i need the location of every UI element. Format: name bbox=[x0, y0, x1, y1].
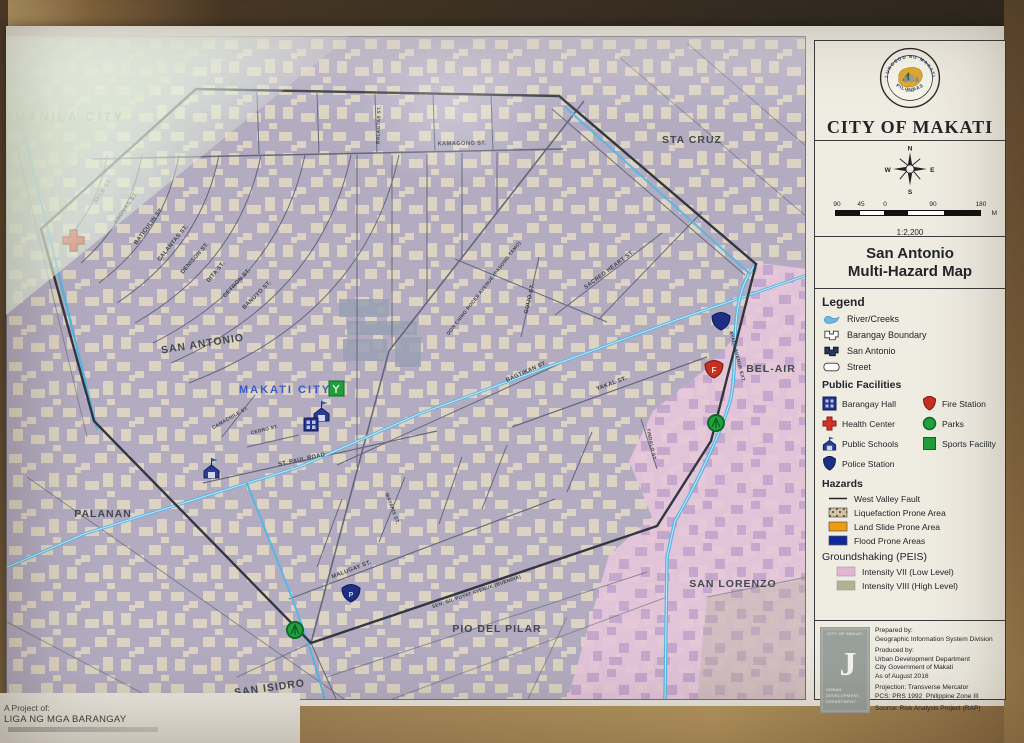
source: Source: Risk Analysis Project (RAP) bbox=[875, 705, 993, 714]
legend-item-boundary: Barangay Boundary bbox=[822, 328, 998, 342]
facility-police-station: Police Station bbox=[822, 456, 920, 471]
udd-logo-letter: J bbox=[840, 646, 857, 683]
compass-e: E bbox=[930, 167, 935, 174]
legend-label: Barangay Boundary bbox=[847, 330, 927, 340]
scale-tick: 90 bbox=[929, 201, 936, 208]
scale-ratio: 1:2,200 bbox=[821, 228, 999, 237]
wood-frame-right bbox=[1004, 0, 1024, 743]
seal-box: 1990 LUNGSOD NG MAKATI PILIPINAS CITY OF… bbox=[815, 41, 1005, 141]
udd-logo-top: CITY OF MAKATI bbox=[827, 631, 863, 636]
map-title-box: San Antonio Multi-Hazard Map bbox=[815, 237, 1005, 289]
health-center-legend-icon bbox=[822, 416, 837, 431]
legend-label: Flood Prone Areas bbox=[854, 536, 925, 546]
produced-by-3: As of August 2016 bbox=[875, 673, 993, 682]
legend-item-river: River/Creeks bbox=[822, 312, 998, 326]
park-icon-south bbox=[287, 622, 303, 638]
legend-label: Parks bbox=[942, 419, 964, 429]
legend-label: Barangay Hall bbox=[842, 399, 896, 409]
scale-bar: 90 45 0 90 180 M bbox=[835, 201, 985, 225]
facilities-title: Public Facilities bbox=[822, 379, 998, 391]
parks-legend-icon bbox=[922, 416, 937, 431]
flood-swatch bbox=[828, 535, 848, 546]
landslide-swatch bbox=[828, 521, 848, 532]
legend-box: Legend River/Creeks Barangay Boundary Sa… bbox=[815, 289, 1005, 621]
district-label-palanan: PALANAN bbox=[74, 508, 132, 520]
footer-project-credit: A Project of: LIGA NG MGA BARANGAY bbox=[0, 693, 300, 743]
liquefaction-swatch bbox=[828, 507, 848, 518]
legend-label: Public Schools bbox=[842, 439, 898, 449]
facility-fire-station: Fire Station bbox=[922, 396, 998, 411]
fire-glyph: F bbox=[712, 366, 717, 375]
compass-w: W bbox=[885, 167, 892, 174]
street-label-kamagong: KAMAGONG ST. bbox=[438, 141, 487, 148]
hazard-map-svg: MANILA CITY STA CRUZ SAN ANTONIO PALANAN… bbox=[7, 37, 806, 700]
facility-sports: Sports Facility bbox=[922, 436, 998, 451]
hazard-fault: West Valley Fault bbox=[828, 493, 998, 504]
legend-item-san-antonio: San Antonio bbox=[822, 344, 998, 358]
compass-rose: N S W E bbox=[884, 143, 936, 195]
hazard-flood: Flood Prone Areas bbox=[828, 535, 998, 546]
scale-unit: M bbox=[992, 210, 997, 217]
scale-segments bbox=[835, 210, 981, 216]
hazard-liquefaction: Liquefaction Prone Area bbox=[828, 507, 998, 518]
shaking-viii: Intensity VIII (High Level) bbox=[836, 580, 998, 591]
legend-label: River/Creeks bbox=[847, 314, 899, 324]
legend-label: Police Station bbox=[842, 459, 895, 469]
projection: Projection: Transverse Mercator bbox=[875, 684, 993, 693]
pcs: PCS: PRS 1992_Philippine Zone III bbox=[875, 693, 993, 702]
district-label-manila-city: MANILA CITY bbox=[15, 110, 125, 124]
west-valley-fault-icon bbox=[828, 493, 848, 504]
map-title-line1: San Antonio bbox=[821, 245, 999, 263]
barangay-hall-icon bbox=[304, 418, 318, 431]
river-icon bbox=[822, 312, 841, 326]
produced-by-1: Urban Development Department bbox=[875, 656, 993, 665]
hazard-landslide: Land Slide Prone Area bbox=[828, 521, 998, 532]
legend-label: Health Center bbox=[842, 419, 895, 429]
makati-city-label: MAKATI CITY bbox=[239, 384, 331, 396]
map-canvas: MANILA CITY STA CRUZ SAN ANTONIO PALANAN… bbox=[6, 36, 806, 700]
district-label-sta-cruz: STA CRUZ bbox=[662, 134, 722, 146]
udd-logo-b3: DEPARTMENT bbox=[826, 699, 856, 704]
produced-by-label: Produced by: bbox=[875, 647, 993, 656]
framed-map-photo: MANILA CITY STA CRUZ SAN ANTONIO PALANAN… bbox=[0, 0, 1024, 743]
scale-tick: 180 bbox=[976, 201, 987, 208]
legend-label: Fire Station bbox=[942, 399, 986, 409]
district-label-san-lorenzo: SAN LORENZO bbox=[689, 578, 776, 590]
prepared-by: Geographic Information System Division bbox=[875, 636, 993, 645]
legend-title: Legend bbox=[822, 295, 998, 309]
info-panel: 1990 LUNGSOD NG MAKATI PILIPINAS CITY OF… bbox=[814, 40, 1006, 700]
legend-label: Liquefaction Prone Area bbox=[854, 508, 946, 518]
facility-barangay-hall: Barangay Hall bbox=[822, 396, 920, 411]
intensity-vii-swatch bbox=[836, 566, 856, 577]
street-icon bbox=[822, 360, 841, 374]
produced-by-2: City Government of Makati bbox=[875, 664, 993, 673]
legend-label: Sports Facility bbox=[942, 439, 996, 449]
facility-public-schools: Public Schools bbox=[822, 436, 920, 451]
compass-star bbox=[893, 152, 926, 185]
wood-frame-top bbox=[0, 0, 1024, 28]
public-schools-legend-icon bbox=[822, 436, 837, 451]
facility-parks: Parks bbox=[922, 416, 998, 431]
facilities-grid: Barangay Hall Fire Station Health Center… bbox=[822, 394, 998, 473]
compass-n: N bbox=[908, 145, 913, 152]
sports-facility-legend-icon bbox=[922, 436, 937, 451]
udd-logo-b2: DEVELOPMENT bbox=[826, 693, 860, 698]
legend-item-street: Street bbox=[822, 360, 998, 374]
fire-station-legend-icon bbox=[922, 396, 937, 411]
barangay-boundary-icon bbox=[822, 328, 841, 342]
prepared-by-label: Prepared by: bbox=[875, 627, 993, 636]
police-station-legend-icon bbox=[822, 456, 837, 471]
scale-tick: 0 bbox=[883, 201, 887, 208]
district-label-pio-del-pilar: PIO DEL PILAR bbox=[452, 623, 541, 635]
legend-label: Street bbox=[847, 362, 871, 372]
legend-label: West Valley Fault bbox=[854, 494, 920, 504]
legend-label: Intensity VIII (High Level) bbox=[862, 581, 958, 591]
legend-label: San Antonio bbox=[847, 346, 896, 356]
intensity-viii-swatch bbox=[836, 580, 856, 591]
udd-logo: CITY OF MAKATI J URBAN DEVELOPMENT DEPAR… bbox=[820, 627, 870, 713]
poster-sheet: MANILA CITY STA CRUZ SAN ANTONIO PALANAN… bbox=[6, 26, 1008, 717]
project-label: A Project of: bbox=[4, 703, 300, 713]
san-antonio-area-icon bbox=[822, 344, 841, 358]
legend-label: Land Slide Prone Area bbox=[854, 522, 940, 532]
compass-s: S bbox=[908, 189, 913, 195]
district-label-bel-air: BEL-AIR bbox=[746, 363, 796, 375]
credits-text: Prepared by: Geographic Information Syst… bbox=[875, 627, 993, 715]
park-icon-east bbox=[708, 415, 724, 431]
groundshaking-title: Groundshaking (PEIS) bbox=[822, 551, 998, 563]
police-glyph: P bbox=[349, 592, 354, 599]
scale-labels: 90 45 0 90 180 bbox=[835, 201, 985, 210]
facility-health-center: Health Center bbox=[822, 416, 920, 431]
hazards-title: Hazards bbox=[822, 478, 998, 490]
credits-box: CITY OF MAKATI J URBAN DEVELOPMENT DEPAR… bbox=[815, 621, 1005, 721]
sports-facility-icon bbox=[329, 381, 344, 396]
barangay-hall-legend-icon bbox=[822, 396, 837, 411]
map-title-line2: Multi-Hazard Map bbox=[821, 263, 999, 281]
city-title: CITY OF MAKATI bbox=[821, 117, 999, 138]
scale-tick: 45 bbox=[857, 201, 864, 208]
udd-logo-b1: URBAN bbox=[826, 687, 842, 692]
scale-tick: 90 bbox=[833, 201, 840, 208]
project-name: LIGA NG MGA BARANGAY bbox=[4, 714, 300, 725]
shaking-vii: Intensity VII (Low Level) bbox=[836, 566, 998, 577]
makati-seal: 1990 LUNGSOD NG MAKATI PILIPINAS bbox=[878, 46, 942, 110]
compass-scale-box: N S W E 90 45 0 90 bbox=[815, 141, 1005, 237]
footer-cropped-line bbox=[8, 727, 158, 732]
legend-label: Intensity VII (Low Level) bbox=[862, 567, 954, 577]
